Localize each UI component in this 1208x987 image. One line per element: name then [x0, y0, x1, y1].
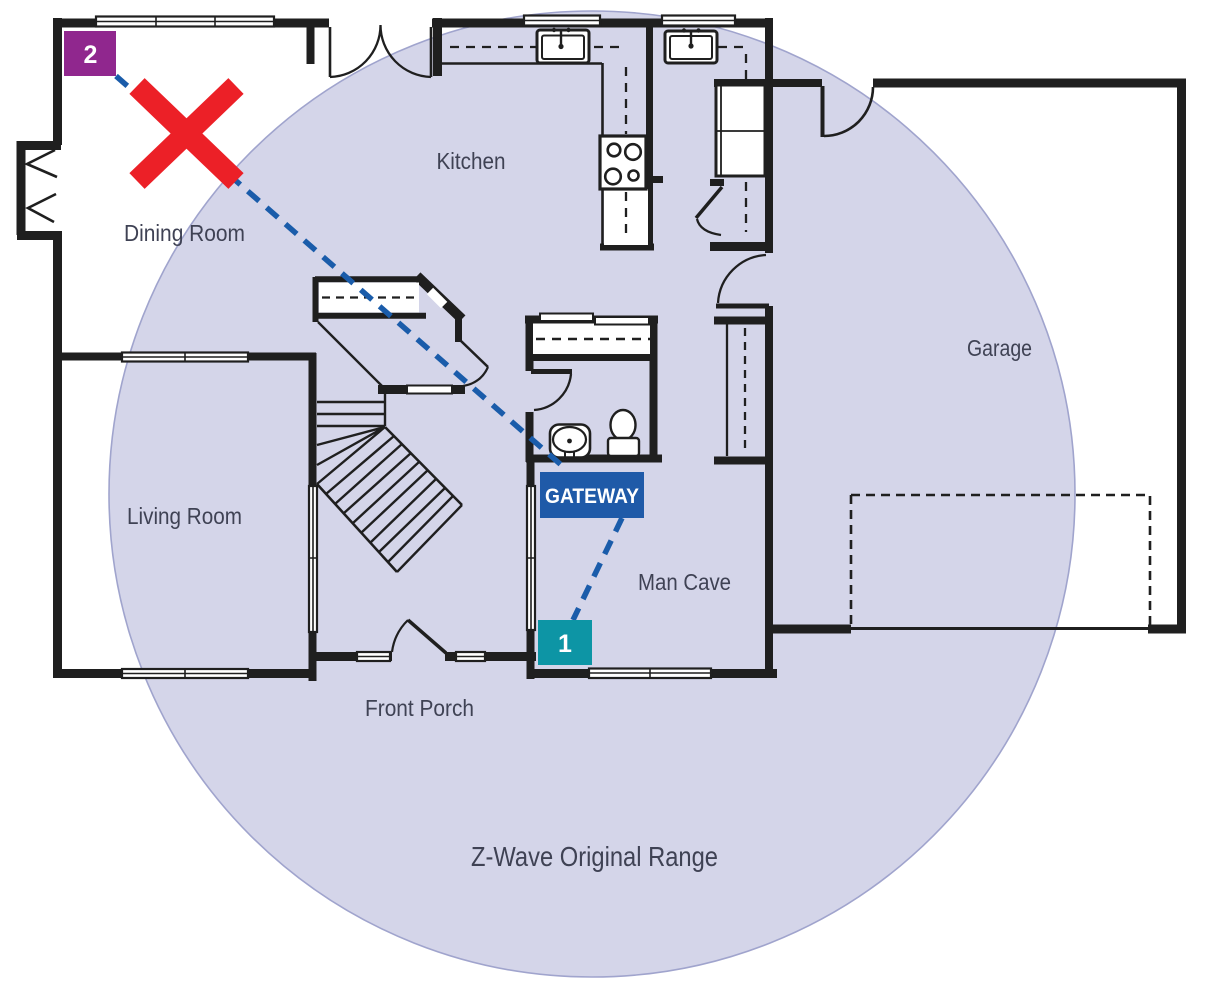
svg-text:Man Cave: Man Cave: [638, 569, 731, 595]
svg-text:Living Room: Living Room: [127, 503, 242, 529]
svg-text:GATEWAY: GATEWAY: [545, 485, 639, 508]
svg-text:Garage: Garage: [967, 335, 1032, 361]
svg-text:Kitchen: Kitchen: [437, 148, 506, 174]
svg-text:2: 2: [84, 41, 98, 69]
svg-text:Dining Room: Dining Room: [124, 220, 245, 246]
svg-text:Z-Wave Original Range: Z-Wave Original Range: [471, 841, 718, 872]
svg-text:1: 1: [558, 630, 572, 658]
svg-text:Front Porch: Front Porch: [365, 695, 474, 721]
